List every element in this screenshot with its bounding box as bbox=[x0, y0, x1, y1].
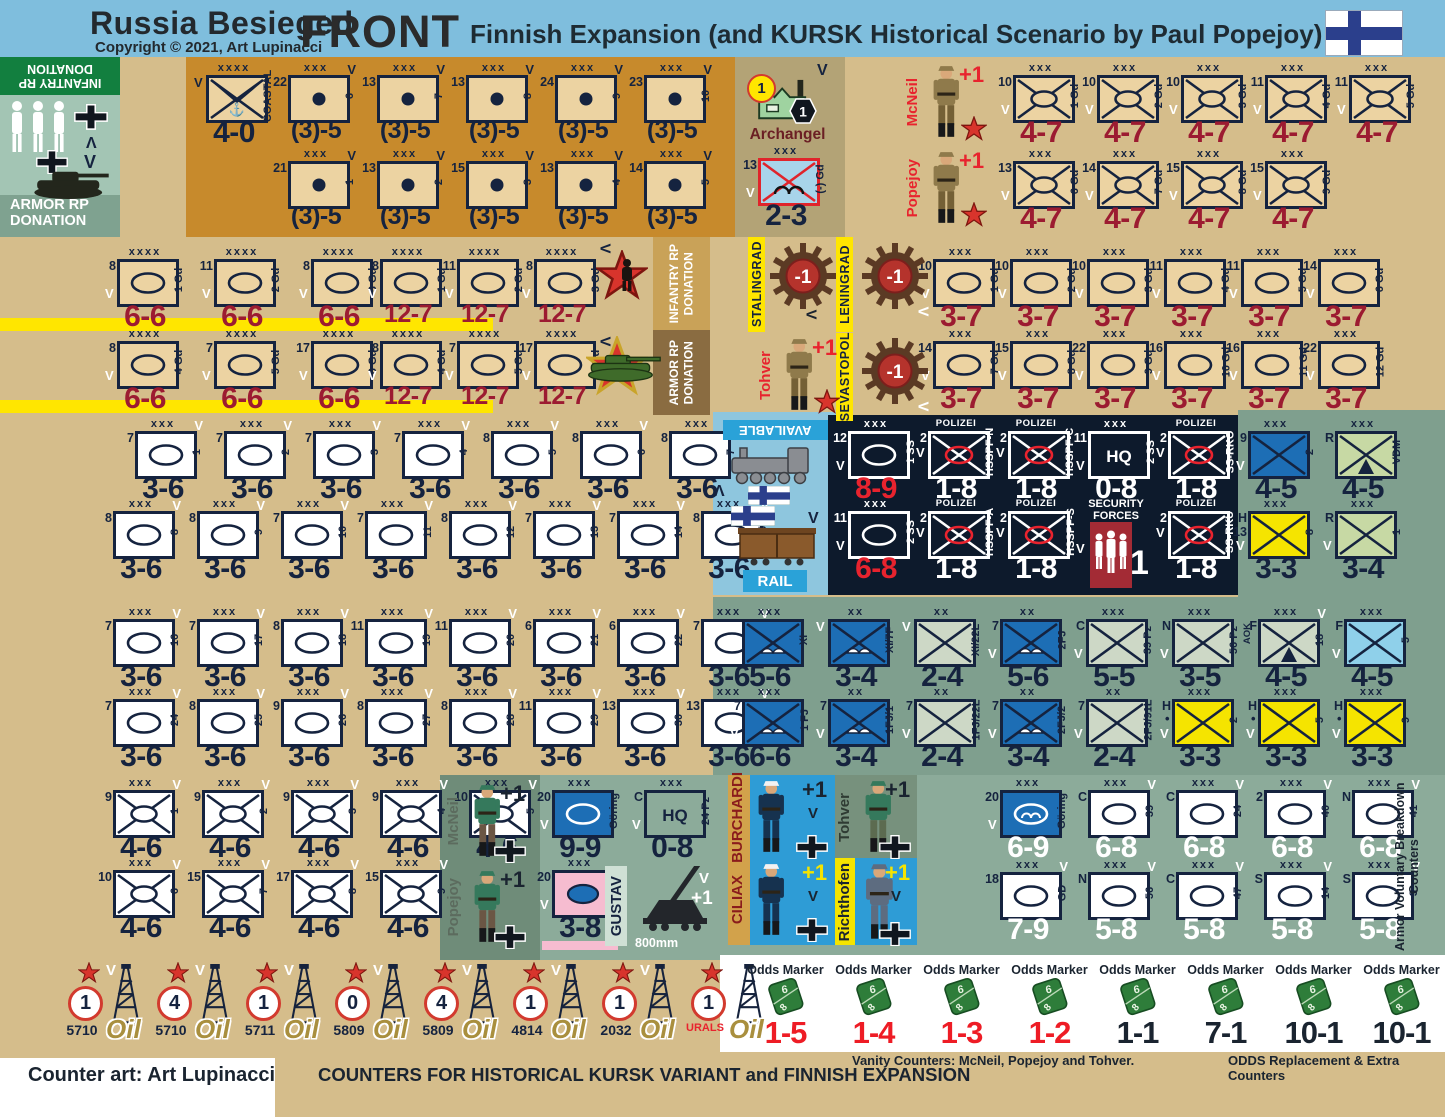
odds-marker-1-2-3[interactable]: Odds Marker 68 1-2 bbox=[1002, 963, 1097, 1058]
counter-6-9-G-ring[interactable]: xxx20GöringV6-9 bbox=[986, 777, 1070, 869]
vanity-counter-Tohver[interactable]: Tohver+1 bbox=[756, 333, 844, 417]
unit-id: 2FJ bbox=[1055, 619, 1070, 661]
counter-3-7-11-Gd[interactable]: xxx1611 GdV3-7 bbox=[1227, 328, 1311, 420]
counter-4-7-9-Gd[interactable]: xxx159 GdV4-7 bbox=[1251, 148, 1335, 240]
counter-3-3-8[interactable]: xxxH138V3-3 bbox=[1234, 498, 1318, 590]
counter-6-6-4-Gd[interactable]: xxxx84 GdV6-6 bbox=[103, 328, 187, 420]
oil-counter-5710[interactable]: V 1 5710 Oil bbox=[62, 962, 154, 1054]
red-star-icon bbox=[961, 202, 987, 228]
counter-(3)-5-1[interactable]: xxx211V(3)-5 bbox=[274, 148, 358, 240]
counter-6-8-2-SS[interactable]: xxx112 SSV6-8 bbox=[834, 498, 918, 590]
v-marker: V bbox=[299, 287, 308, 300]
v-marker: V bbox=[1253, 189, 1262, 202]
counter-6-8-39[interactable]: xxxC39V6-8 bbox=[1074, 777, 1158, 869]
v-marker: V bbox=[283, 419, 292, 432]
oil-value-badge: 0 bbox=[335, 986, 370, 1021]
counter-(3)-5-5[interactable]: xxx145V(3)-5 bbox=[630, 148, 714, 240]
combat-value: 4-7 bbox=[1083, 203, 1167, 235]
infantry-rp-strip: INFANTRY RPDONATION bbox=[653, 237, 710, 330]
v-marker: V bbox=[424, 687, 433, 700]
v-marker: V bbox=[592, 499, 601, 512]
oil-value-badge: 4 bbox=[424, 986, 459, 1021]
counter-4-5-18[interactable]: xxxFAOK18V4-5 bbox=[1244, 606, 1328, 698]
counter-1-8-HSSPF-C[interactable]: POLIZEI2HSSPF-CV1-8 bbox=[994, 418, 1078, 510]
counter-3-6-13[interactable]: xxx713V3-6 bbox=[519, 498, 603, 590]
counter-3-6-8[interactable]: xxx88V3-6 bbox=[99, 498, 183, 590]
counter-3-4-1FJ-1[interactable]: xx71FJ/1V3-4 bbox=[814, 686, 898, 778]
v-marker: V bbox=[436, 63, 445, 76]
v-marker: V bbox=[915, 306, 932, 316]
v-marker: V bbox=[202, 369, 211, 382]
combat-value: 4-7 bbox=[1251, 117, 1335, 149]
oil-label: Oil bbox=[373, 1014, 408, 1045]
v-marker: V bbox=[988, 647, 997, 660]
balkenkreuz-icon bbox=[494, 839, 526, 863]
combat-value: 2-4 bbox=[900, 741, 984, 773]
v-marker: V bbox=[1160, 727, 1169, 740]
counter-4-7-7-Gd[interactable]: xxx147 GdV4-7 bbox=[1083, 148, 1167, 240]
production-gear-counter[interactable]: -1 bbox=[770, 243, 836, 309]
bonus-value: +1 bbox=[500, 867, 525, 893]
counter-1-8-HSSPF-N[interactable]: POLIZEI2HSSPF-NV1-8 bbox=[914, 418, 998, 510]
counter-3-6-29[interactable]: xxx1129V3-6 bbox=[519, 686, 603, 778]
unit-id: 39 Pz bbox=[1141, 619, 1156, 661]
counter-4-5-VDM[interactable]: xxxRVDM4-5 bbox=[1321, 418, 1405, 510]
oil-label: Oil bbox=[462, 1014, 497, 1045]
counter-3-6-25[interactable]: xxx825V3-6 bbox=[183, 686, 267, 778]
balkenkreuz-icon bbox=[74, 104, 108, 130]
v-marker: V bbox=[676, 607, 685, 620]
v-marker: V bbox=[1152, 369, 1161, 382]
vanity-counter-Tohver[interactable]: Tohver+1 bbox=[835, 775, 917, 859]
unit-id: 6 bbox=[168, 870, 183, 912]
v-marker: V bbox=[1075, 287, 1084, 300]
counter-3-7-3-Gd[interactable]: xxx103 GdV3-7 bbox=[1073, 246, 1157, 338]
v-marker: V bbox=[540, 818, 549, 831]
unit-id: 1 bbox=[190, 431, 205, 473]
counter-4-6-6[interactable]: xxx106V4-6 bbox=[99, 857, 183, 949]
v-marker: V bbox=[1074, 647, 1083, 660]
counter-3-6-1[interactable]: xxx71V3-6 bbox=[121, 418, 205, 510]
v-marker: V bbox=[916, 446, 925, 459]
unit-id: 24 bbox=[1231, 790, 1246, 832]
odds-marker-1-1-4[interactable]: Odds Marker 68 1-1 bbox=[1090, 963, 1185, 1058]
v-marker: V bbox=[522, 369, 531, 382]
combat-value: (3)-5 bbox=[541, 117, 625, 143]
counter-5-8-14[interactable]: xxxS14V5-8 bbox=[1250, 859, 1334, 951]
v-marker: V bbox=[1235, 860, 1244, 873]
factory-value-badge: 1 bbox=[747, 74, 776, 103]
counter-4-5-5[interactable]: xxxF5V4-5 bbox=[1330, 606, 1414, 698]
counter-3-4-XI-7F[interactable]: xxXI/7FV3-4 bbox=[814, 606, 898, 698]
counter-3-6-12[interactable]: xxx812V3-6 bbox=[435, 498, 519, 590]
red-star-icon bbox=[78, 962, 100, 984]
counter-0-8-2-SS[interactable]: xxx11HQ2 SSV0-8 bbox=[1074, 418, 1158, 510]
v-marker: V bbox=[836, 459, 845, 472]
officer-figure bbox=[750, 779, 793, 855]
counter-6-6-5-Gd[interactable]: xxxx75 GdV6-6 bbox=[200, 328, 284, 420]
bonus-value: +1 bbox=[802, 860, 827, 886]
vanity-counter-CILIAX[interactable]: CILIAX+1V bbox=[728, 858, 834, 942]
v-marker: V bbox=[1147, 778, 1156, 791]
counter-3-7-12-Gd[interactable]: xxx2212 GdV3-7 bbox=[1304, 328, 1388, 420]
odds-value: 1-5 bbox=[738, 1015, 833, 1051]
counter-3-7-8-Gd[interactable]: xxx158 GdV3-7 bbox=[996, 328, 1080, 420]
counter-12-7-1-Gd[interactable]: xxxx81 GdV12-7 bbox=[366, 246, 450, 338]
vanity-counter-Popejoy[interactable]: Popejoy+1 bbox=[903, 146, 991, 230]
unit-id: 9 bbox=[1399, 699, 1414, 741]
unit-id: 24 Pz bbox=[699, 790, 714, 832]
bonus-value: +1 bbox=[959, 148, 984, 174]
counter-(3)-5-8[interactable]: xxx138V(3)-5 bbox=[452, 62, 536, 154]
unit-id: 5 bbox=[1399, 619, 1414, 661]
v-marker: V bbox=[256, 687, 265, 700]
oil-label: Oil bbox=[195, 1014, 230, 1045]
oil-value-badge: 1 bbox=[68, 986, 103, 1021]
v-marker: V bbox=[1332, 727, 1341, 740]
counter-4-7-8-Gd[interactable]: xxx158 GdV4-7 bbox=[1167, 148, 1251, 240]
counter-12-7-4-Gd[interactable]: xxxx84 GdV12-7 bbox=[366, 328, 450, 420]
combat-value: 5-8 bbox=[1074, 914, 1158, 946]
vanity-counter-McNeil[interactable]: McNeil+1 bbox=[903, 60, 991, 144]
copyright: Copyright © 2021, Art Lupinacci bbox=[95, 39, 322, 56]
vanity-counter-BURCHARDI[interactable]: BURCHARDI+1V bbox=[728, 775, 834, 859]
counter-(3)-5-4[interactable]: xxx134V(3)-5 bbox=[541, 148, 625, 240]
counter-3-6-6[interactable]: xxx86V3-6 bbox=[566, 418, 650, 510]
combat-value: 3-7 bbox=[1304, 383, 1388, 415]
bonus-value: +1 bbox=[802, 777, 827, 803]
finland-flag-icon bbox=[731, 506, 775, 526]
counter-12-7-2-Gd[interactable]: xxxx112 GdV12-7 bbox=[443, 246, 527, 338]
counter-3-6-16[interactable]: xxx716V3-6 bbox=[99, 606, 183, 698]
v-marker: V bbox=[540, 898, 549, 911]
counter-0-8-24-Pz[interactable]: xxxCHQ24 PzV0-8 bbox=[630, 777, 714, 869]
counter-12-7-5-Gd[interactable]: xxxx75 GdV12-7 bbox=[443, 328, 527, 420]
v-marker: V bbox=[445, 369, 454, 382]
counter-(3)-5-7[interactable]: xxx137V(3)-5 bbox=[363, 62, 447, 154]
counter-3-6-5[interactable]: xxx85V3-6 bbox=[477, 418, 561, 510]
v-marker: V bbox=[1076, 542, 1085, 555]
counter-6-6-2-Gd[interactable]: xxxx112 GdV6-6 bbox=[200, 246, 284, 338]
odds-marker-1-4-1[interactable]: Odds Marker 68 1-4 bbox=[826, 963, 921, 1058]
counter-4-7-6-Gd[interactable]: xxx136 GdV4-7 bbox=[999, 148, 1083, 240]
bonus-value: +1 bbox=[500, 781, 525, 807]
counter-3-6-18[interactable]: xxx818V3-6 bbox=[267, 606, 351, 698]
counter-3-6-30[interactable]: xxx1330V3-6 bbox=[603, 686, 687, 778]
counter-2-4-2FJ-91L[interactable]: xx72FJ/91LV2-4 bbox=[1072, 686, 1156, 778]
counter-3-6-24[interactable]: xxx724V3-6 bbox=[99, 686, 183, 778]
counter-(3)-5-9[interactable]: xxx249V(3)-5 bbox=[541, 62, 625, 154]
counter-3-7-4-Gd[interactable]: xxx114 GdV3-7 bbox=[1150, 246, 1234, 338]
v-marker: V bbox=[1160, 647, 1169, 660]
unit-id: 7 bbox=[257, 870, 272, 912]
v-marker: V bbox=[915, 401, 932, 411]
counter-(3)-5-2[interactable]: xxx132V(3)-5 bbox=[363, 148, 447, 240]
v-marker: V bbox=[1076, 459, 1085, 472]
v-marker: V bbox=[424, 607, 433, 620]
counter-3-3-2[interactable]: xxxH•2V3-3 bbox=[1158, 686, 1242, 778]
v-marker: V bbox=[340, 607, 349, 620]
oil-counter-2032[interactable]: V 1 2032 Oil bbox=[596, 962, 688, 1054]
counter-3-3-9[interactable]: xxxH•9V3-3 bbox=[1330, 686, 1414, 778]
v-marker: V bbox=[1235, 778, 1244, 791]
counter-9-9-G-ring[interactable]: xxx20GöringV9-9 bbox=[538, 777, 622, 869]
counter-2-4-XI-22L[interactable]: xxXI/22LV2-4 bbox=[900, 606, 984, 698]
vanity-counter-Richthofen[interactable]: Richthofen+1V bbox=[835, 858, 917, 946]
counter-3-6-28[interactable]: xxx828V3-6 bbox=[435, 686, 519, 778]
counter-7-9-GD[interactable]: xxx18GDV7-9 bbox=[986, 859, 1070, 951]
counter-4-5-2[interactable]: xxx92V4-5 bbox=[1234, 418, 1318, 510]
counter-1-8-HSSPF-A[interactable]: POLIZEI2HSSPF-AV1-8 bbox=[914, 498, 998, 590]
red-star-icon bbox=[701, 962, 723, 984]
combat-value: 6-6 bbox=[200, 383, 284, 415]
odds-value: 7-1 bbox=[1178, 1015, 1273, 1051]
unit-id: 56 Pz bbox=[1227, 619, 1242, 661]
counter-3-7-5-Gd[interactable]: xxx115 GdV3-7 bbox=[1227, 246, 1311, 338]
combat-value: (3)-5 bbox=[541, 203, 625, 229]
v-marker: V bbox=[522, 287, 531, 300]
counter-4-7-4-Gd[interactable]: xxx114 GdV4-7 bbox=[1251, 62, 1335, 154]
counter-3-6-27[interactable]: xxx827V3-6 bbox=[351, 686, 435, 778]
counter-sheet: Russia Besieged Copyright © 2021, Art Lu… bbox=[0, 0, 1445, 1117]
unit-id: 2 bbox=[1303, 431, 1318, 473]
v-marker: V bbox=[836, 539, 845, 552]
counter-6-6-1-FJ[interactable]: xxx71 FJV6-6 bbox=[728, 686, 812, 778]
v-marker: V bbox=[996, 526, 1005, 539]
counter-3-6-17[interactable]: xxx717V3-6 bbox=[183, 606, 267, 698]
counter-3-5-56-Pz[interactable]: xxxN56 PzV3-5 bbox=[1158, 606, 1242, 698]
v-marker: V bbox=[1085, 103, 1094, 116]
counter-12-7-3-Gd[interactable]: xxxx83 GdV12-7 bbox=[520, 246, 604, 338]
v-marker: V bbox=[803, 309, 820, 319]
oil-counter-5711[interactable]: V 1 5711 Oil bbox=[240, 962, 332, 1054]
counter-3-7-6-Gd[interactable]: xxx146 GdV3-7 bbox=[1304, 246, 1388, 338]
oil-label: Oil bbox=[284, 1014, 319, 1045]
counter-(3)-5-6[interactable]: xxx226V(3)-5 bbox=[274, 62, 358, 154]
unit-id: Göring bbox=[1055, 790, 1070, 832]
city-strip-STALINGRAD: STALINGRAD bbox=[748, 237, 765, 332]
v-marker: V bbox=[261, 778, 270, 791]
red-star-icon bbox=[814, 389, 840, 415]
counter-5-8-47[interactable]: xxxC47V5-8 bbox=[1162, 859, 1246, 951]
counter-4-6-2[interactable]: xxx92V4-6 bbox=[188, 777, 272, 869]
counter-3-6-10[interactable]: xxx710V3-6 bbox=[267, 498, 351, 590]
counter-3-6-2[interactable]: xxx72V3-6 bbox=[210, 418, 294, 510]
counter-(3)-5-10[interactable]: xxx2310V(3)-5 bbox=[630, 62, 714, 154]
unit-id: 2 bbox=[279, 431, 294, 473]
counter-5-8-56[interactable]: xxxN56V5-8 bbox=[1074, 859, 1158, 951]
unit-id: 4 bbox=[610, 161, 625, 203]
unit-id: XI bbox=[797, 619, 812, 661]
counter-3-6-26[interactable]: xxx926V3-6 bbox=[267, 686, 351, 778]
vanity-counter-Popejoy[interactable]: Popejoy+1 bbox=[444, 865, 532, 949]
v-marker: V bbox=[350, 778, 359, 791]
v-marker: V bbox=[194, 419, 203, 432]
combat-value: 6-6 bbox=[728, 741, 812, 773]
odds-marker-10-1-6[interactable]: Odds Marker 68 10-1 bbox=[1266, 963, 1361, 1058]
svg-text:-1: -1 bbox=[887, 267, 904, 288]
combat-value: 1-8 bbox=[1154, 553, 1238, 585]
counter-3-7-7-Gd[interactable]: xxx147 GdV3-7 bbox=[919, 328, 1003, 420]
combat-value: 5-8 bbox=[1162, 914, 1246, 946]
oil-counter-4814[interactable]: V 1 4814 Oil bbox=[507, 962, 599, 1054]
counter-3-6-3[interactable]: xxx73V3-6 bbox=[299, 418, 383, 510]
counter-3-7-9-Gd[interactable]: xxx229 GdV3-7 bbox=[1073, 328, 1157, 420]
unit-id: 1 bbox=[1390, 511, 1405, 553]
combat-value: 3-7 bbox=[1227, 383, 1311, 415]
counter-4-6-3[interactable]: xxx93V4-6 bbox=[277, 777, 361, 869]
city-name: Archangel bbox=[745, 126, 830, 144]
counter-4-7-5-Gd[interactable]: xxx115 GdV4-7 bbox=[1335, 62, 1419, 154]
odds-marker-label: Odds Marker bbox=[1090, 963, 1185, 977]
counter-6-6-1-Gd[interactable]: xxxx81 GdV6-6 bbox=[103, 246, 187, 338]
v-marker: V bbox=[461, 419, 470, 432]
counter-8-9-1-SS[interactable]: xxx121 SSV8-9 bbox=[834, 418, 918, 510]
odds-marker-10-1-7[interactable]: Odds Marker 68 10-1 bbox=[1354, 963, 1445, 1058]
counter-3-4-2FJ-2[interactable]: xx72FJ/2V3-4 bbox=[986, 686, 1070, 778]
counter-1-8-HSSPF-S[interactable]: POLIZEI2HSSPF-SV1-8 bbox=[994, 498, 1078, 590]
combat-value: 4-7 bbox=[1083, 117, 1167, 149]
counter-4-6-8[interactable]: xxx178V4-6 bbox=[277, 857, 361, 949]
combat-value: 4-7 bbox=[1167, 117, 1251, 149]
counter-archangel[interactable]: V 1 1 Archangel bbox=[745, 60, 830, 150]
oil-label: Oil bbox=[551, 1014, 586, 1045]
odds-value: 1-2 bbox=[1002, 1015, 1097, 1051]
counter-4-7-1-Gd[interactable]: xxx101 GdV4-7 bbox=[999, 62, 1083, 154]
combat-value: 12-7 bbox=[443, 301, 527, 327]
counter-3-6-19[interactable]: xxx1119V3-6 bbox=[351, 606, 435, 698]
oil-counter-5710[interactable]: V 4 5710 Oil bbox=[151, 962, 243, 1054]
counter-1-8-SS-RKO[interactable]: POLIZEI2SS-RKOV1-8 bbox=[1154, 418, 1238, 510]
combat-value: 5-8 bbox=[1250, 914, 1334, 946]
sheet-side-label: FRONT bbox=[300, 6, 460, 58]
unit-id: 5 Gd bbox=[1404, 75, 1419, 117]
v-marker: V bbox=[368, 369, 377, 382]
v-marker: V bbox=[996, 446, 1005, 459]
v-marker: V bbox=[1156, 446, 1165, 459]
unit-id: 2 bbox=[432, 161, 447, 203]
combat-value: 1 bbox=[1130, 544, 1149, 583]
counter-4-7-2-Gd[interactable]: xxx102 GdV4-7 bbox=[1083, 62, 1167, 154]
counter-3-4-1[interactable]: xxxR1V3-4 bbox=[1321, 498, 1405, 590]
combat-value: 3-6 bbox=[603, 553, 687, 585]
oil-counter-5809[interactable]: V 0 5809 Oil bbox=[329, 962, 421, 1054]
counter-4-6-7[interactable]: xxx157V4-6 bbox=[188, 857, 272, 949]
combat-value: 4-7 bbox=[999, 117, 1083, 149]
bonus-value: +1 bbox=[885, 860, 910, 886]
counter-3-6-20[interactable]: xxx1120V3-6 bbox=[435, 606, 519, 698]
odds-marker-7-1-5[interactable]: Odds Marker 68 7-1 bbox=[1178, 963, 1273, 1058]
counter-4-6-1[interactable]: xxx91V4-6 bbox=[99, 777, 183, 869]
v-marker: V bbox=[508, 687, 517, 700]
unit-id: 9 bbox=[610, 75, 625, 117]
combat-value: (3)-5 bbox=[630, 117, 714, 143]
counter-3-7-2-Gd[interactable]: xxx102 GdV3-7 bbox=[996, 246, 1080, 338]
v-marker: V bbox=[105, 369, 114, 382]
finland-flag-icon bbox=[748, 486, 790, 505]
combat-value: 3-6 bbox=[603, 741, 687, 773]
counter-4-0-COASTAL[interactable]: xxxx⚓COASTALV4-0 bbox=[192, 62, 276, 154]
counter-1-8-SS-RKU[interactable]: POLIZEI2SS-RKUV1-8 bbox=[1154, 498, 1238, 590]
v-marker: V bbox=[340, 687, 349, 700]
counter-(3)-5-3[interactable]: xxx153V(3)-5 bbox=[452, 148, 536, 240]
counter-3-6-22[interactable]: xxx622V3-6 bbox=[603, 606, 687, 698]
oil-value-badge: 1 bbox=[246, 986, 281, 1021]
unit-id: (-) Gd bbox=[813, 158, 828, 200]
combat-value: 4-7 bbox=[999, 203, 1083, 235]
combat-value: 4-6 bbox=[277, 912, 361, 944]
svg-text:-1: -1 bbox=[887, 362, 904, 383]
counter-security-forces[interactable]: SECURITYFORCES V 1 bbox=[1074, 498, 1158, 590]
v-marker: V bbox=[194, 76, 203, 89]
v-marker: V bbox=[1337, 103, 1346, 116]
counter-2-4-1FJ-22L[interactable]: xx71FJ/22LV2-4 bbox=[900, 686, 984, 778]
combat-value: 4-0 bbox=[192, 117, 276, 149]
d10-die-icon: 68 bbox=[1382, 976, 1422, 1018]
counter-4-7-3-Gd[interactable]: xxx103 GdV4-7 bbox=[1167, 62, 1251, 154]
combat-value: (3)-5 bbox=[363, 203, 447, 229]
odds-marker-1-3-2[interactable]: Odds Marker 68 1-3 bbox=[914, 963, 1009, 1058]
combat-value: 4-6 bbox=[188, 912, 272, 944]
counter-3-6-11[interactable]: xxx711V3-6 bbox=[351, 498, 435, 590]
counter-gustav[interactable]: GUSTAV V +1 800mm bbox=[605, 866, 725, 951]
v-marker: V bbox=[808, 888, 818, 905]
odds-marker-1-5-0[interactable]: Odds Marker 68 1-5 bbox=[738, 963, 833, 1058]
v-marker: V bbox=[340, 499, 349, 512]
counter-6-8-40[interactable]: xxx240V6-8 bbox=[1250, 777, 1334, 869]
unit-id: 9 Gd bbox=[1320, 161, 1335, 203]
counter-4-6-4[interactable]: xxx94V4-6 bbox=[366, 777, 450, 869]
hex-code: 5711 bbox=[234, 1022, 286, 1038]
d10-die-icon: 68 bbox=[1206, 976, 1246, 1018]
unit-id: 18 bbox=[1313, 619, 1328, 661]
combat-value: 1-8 bbox=[914, 553, 998, 585]
unit-id: 56 bbox=[1143, 872, 1158, 914]
counter-4-6-9[interactable]: xxx159V4-6 bbox=[366, 857, 450, 949]
vanity-counter-McNeil[interactable]: McNeil+1 bbox=[444, 779, 532, 863]
oil-counter-5809[interactable]: V 4 5809 Oil bbox=[418, 962, 510, 1054]
balkenkreuz-icon bbox=[879, 835, 911, 859]
unit-id: 12 Gd bbox=[1373, 341, 1388, 383]
counter-3-6-9[interactable]: xxx89V3-6 bbox=[183, 498, 267, 590]
counter-5-6-2FJ[interactable]: xx72FJV5-6 bbox=[986, 606, 1070, 698]
v-marker: V bbox=[1001, 189, 1010, 202]
d10-die-icon: 68 bbox=[766, 976, 806, 1018]
counter-3-3-5[interactable]: xxxH•5V3-3 bbox=[1244, 686, 1328, 778]
d10-die-icon: 68 bbox=[1294, 976, 1334, 1018]
combat-value: 2-3 bbox=[744, 200, 828, 232]
counter-3-6-21[interactable]: xxx621V3-6 bbox=[519, 606, 603, 698]
v-marker: V bbox=[1229, 287, 1238, 300]
odds-value: 1-3 bbox=[914, 1015, 1009, 1051]
red-star-icon bbox=[434, 962, 456, 984]
v-marker: V bbox=[703, 63, 712, 76]
counter-3-7-1-Gd[interactable]: xxx101 GdV3-7 bbox=[919, 246, 1003, 338]
gustav-name-strip: GUSTAV bbox=[605, 866, 627, 946]
counter-6-8-24[interactable]: xxxC24V6-8 bbox=[1162, 777, 1246, 869]
production-gear-counter[interactable]: -1 bbox=[862, 338, 928, 404]
counter-3-6-14[interactable]: xxx714V3-6 bbox=[603, 498, 687, 590]
counter-2-3-(-)-Gd[interactable]: xxx13(-) GdV2-3 bbox=[744, 145, 828, 237]
counter-3-7-10-Gd[interactable]: xxx1610 GdV3-7 bbox=[1150, 328, 1234, 420]
officer-figure bbox=[750, 862, 793, 938]
v-marker: V bbox=[988, 818, 997, 831]
counter-3-6-4[interactable]: xxx74V3-6 bbox=[388, 418, 472, 510]
hex-code: 2032 bbox=[590, 1022, 642, 1038]
counter-5-5-39-Pz[interactable]: xxxC39 PzV5-5 bbox=[1072, 606, 1156, 698]
counter-5-6-XI[interactable]: xxxXIV5-6 bbox=[728, 606, 812, 698]
production-gear-counter[interactable]: -1 bbox=[862, 243, 928, 309]
